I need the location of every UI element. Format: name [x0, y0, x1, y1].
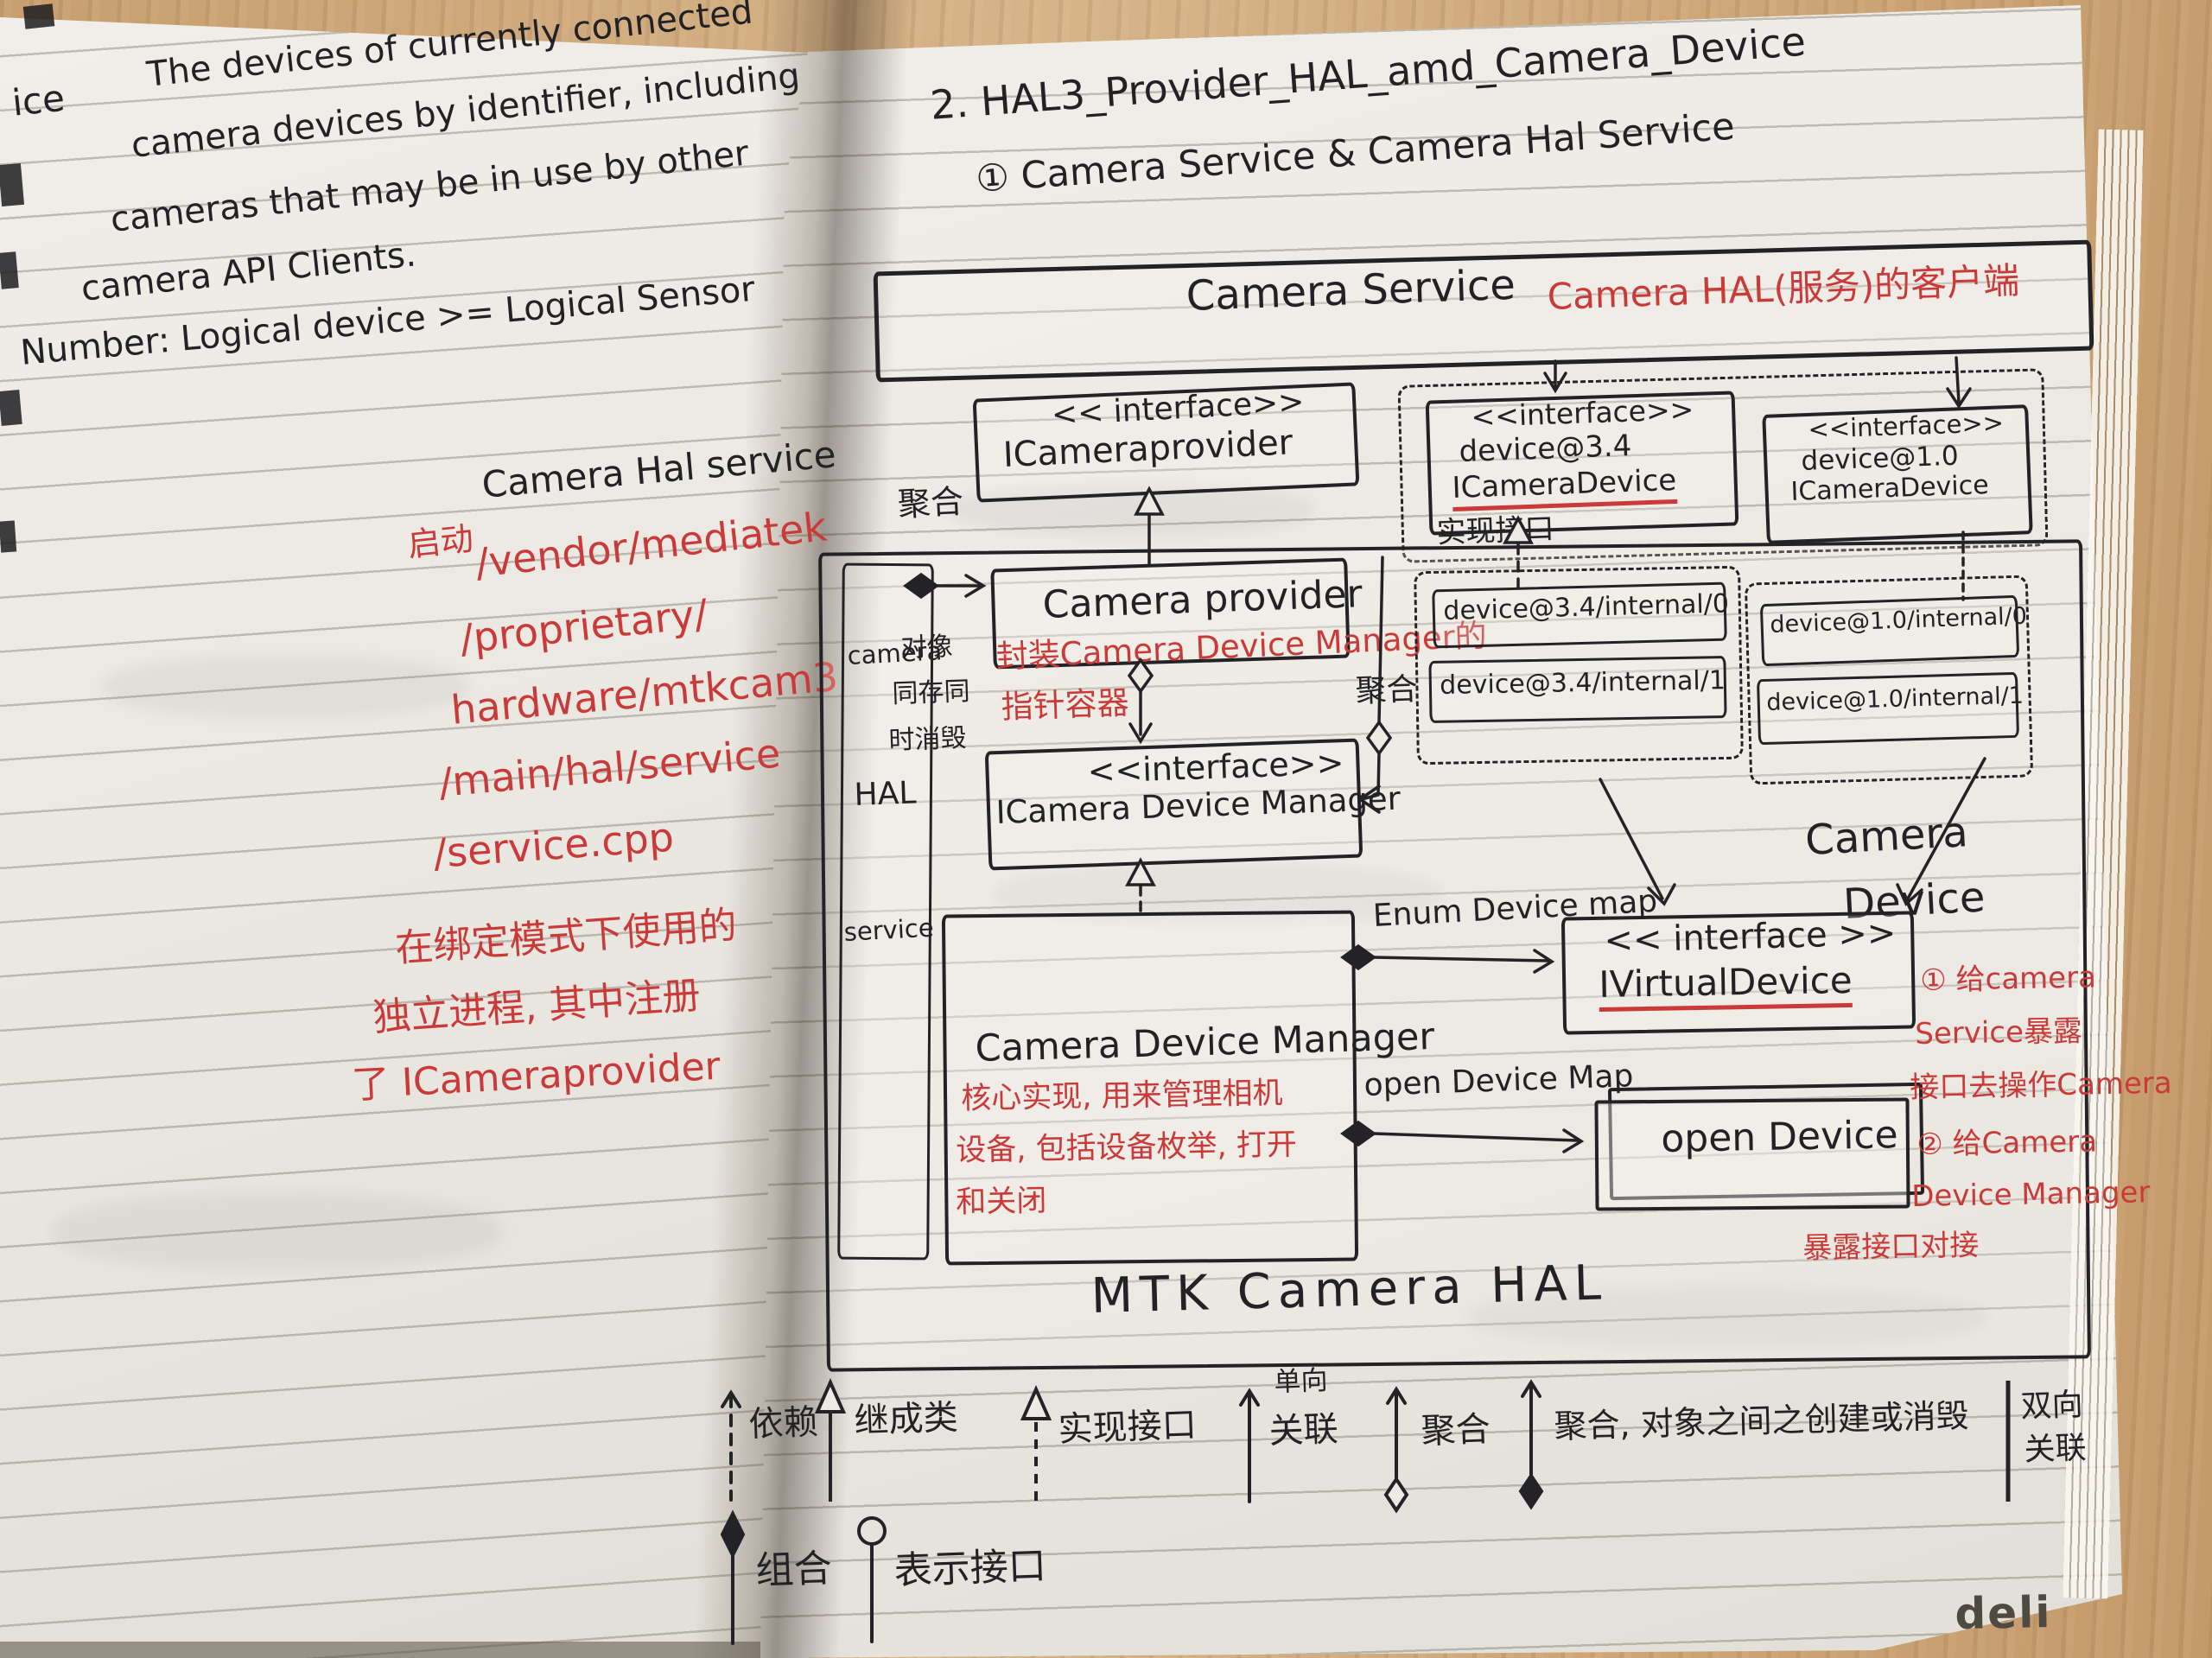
aggregation-filled-arrow-icon [1514, 1372, 1548, 1515]
dependency-arrow-icon [715, 1382, 747, 1505]
legend-aggregation-label: 聚合 [1421, 1411, 1491, 1450]
inheritance-arrow-icon [812, 1375, 849, 1507]
realization-arrow-icon [1018, 1382, 1054, 1514]
notebook-photo: ice The devices of currently connected c… [0, 0, 2212, 1658]
legend-bidirectional-line: 双向 [2020, 1388, 2083, 1423]
legend-realization-label: 实现接口 [1058, 1407, 1197, 1448]
legend-inheritance-label: 继成类 [854, 1400, 958, 1439]
composition-arrow-icon [717, 1507, 748, 1650]
legend-lollipop-label: 表示接口 [893, 1547, 1047, 1591]
association-arrow-icon [1234, 1381, 1265, 1507]
legend-composition-label: 组合 [755, 1549, 833, 1591]
aggregation-hollow-arrow-icon [1379, 1379, 1414, 1517]
legend-bidirectional-line: 关联 [2024, 1432, 2087, 1466]
lollipop-interface-icon [851, 1510, 893, 1648]
legend-dependency-label: 依赖 [748, 1404, 818, 1443]
legend-assoc-top-label: 单向 [1274, 1367, 1328, 1397]
legend-assoc-label: 关联 [1268, 1411, 1338, 1450]
divider-bar-icon [2003, 1375, 2013, 1507]
deli-brand-logo: deli [1955, 1590, 2052, 1636]
